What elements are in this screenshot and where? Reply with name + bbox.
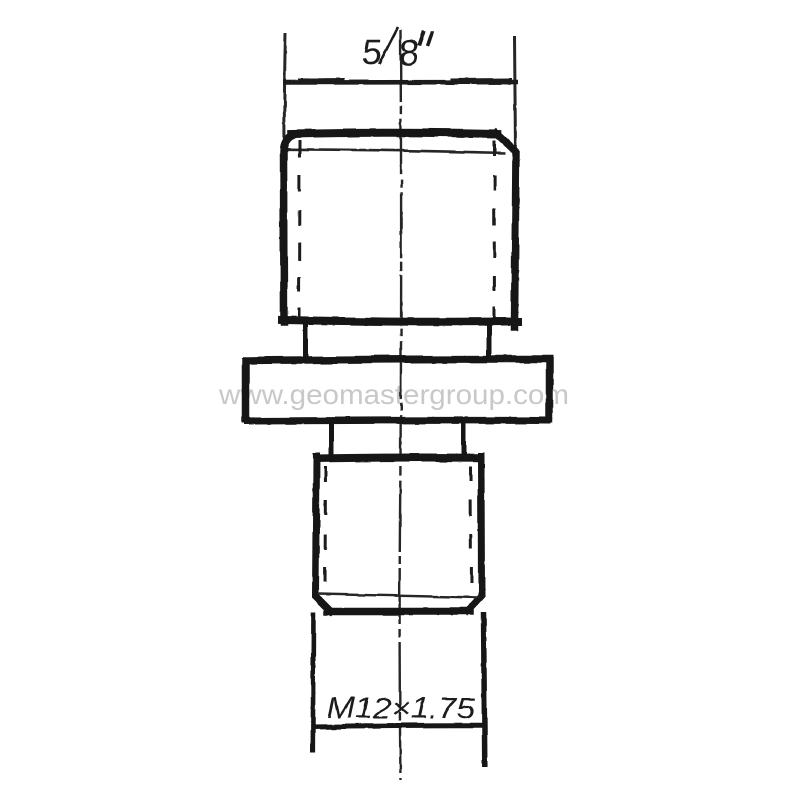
svg-text:www.geomastergroup.com: www.geomastergroup.com [218, 379, 569, 410]
svg-text:M12×1.75: M12×1.75 [327, 692, 475, 725]
svg-text:8: 8 [397, 32, 421, 73]
svg-text:5: 5 [360, 31, 384, 72]
